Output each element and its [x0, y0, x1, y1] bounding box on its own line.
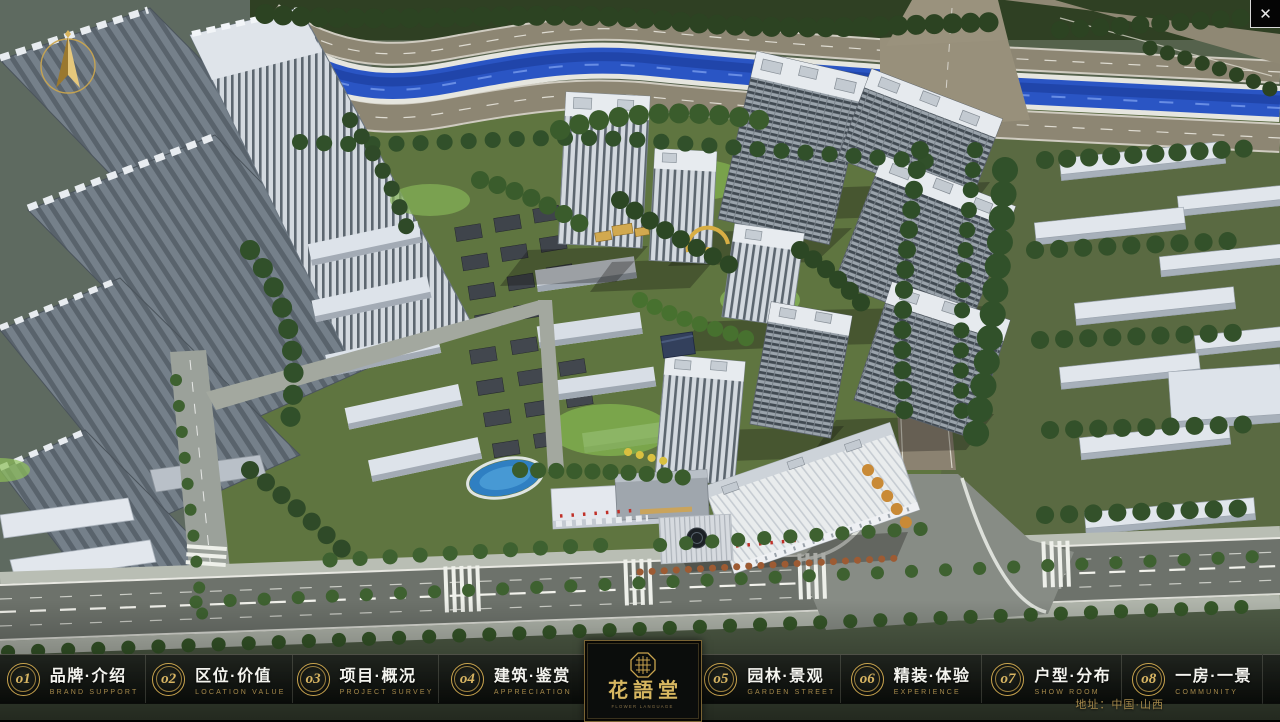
logo-title: 花語堂	[603, 681, 683, 701]
nav-sublabel: EXPERIENCE	[894, 689, 961, 696]
nav-item-architecture[interactable]: o4 建筑·鉴赏 APPRECIATION	[438, 655, 584, 703]
nav-sublabel: LOCATION VALUE	[195, 689, 285, 696]
nav-item-brand-intro[interactable]: o1 品牌·介绍 BRAND SUPPORT	[0, 655, 145, 703]
nav-item-fine-decoration[interactable]: o6 精装·体验 EXPERIENCE	[840, 655, 981, 703]
nav-sublabel: SHOW ROOM	[1034, 689, 1099, 696]
nav-number-badge: o6	[851, 663, 884, 696]
nav-item-location-value[interactable]: o2 区位·价值 LOCATION VALUE	[145, 655, 291, 703]
nav-label: 精装·体验	[894, 662, 971, 686]
nav-number-badge: o4	[451, 663, 484, 696]
nav-number-badge: o2	[152, 663, 185, 696]
nav-label: 区位·价值	[195, 662, 272, 686]
seal-icon	[630, 652, 656, 678]
project-address: 地址：中国·山西	[1075, 696, 1164, 712]
nav-label: 户型·分布	[1034, 662, 1111, 686]
nav-number-badge: o3	[297, 663, 330, 696]
nav-number-badge: o1	[7, 663, 40, 696]
nav-sublabel: APPRECIATION	[494, 689, 572, 696]
nav-number-badge: o7	[991, 663, 1024, 696]
nav-number-badge: o5	[704, 663, 737, 696]
logo-tagline: FLOWER LANGUAGE	[612, 704, 674, 709]
bottom-nav-endcap	[1262, 654, 1280, 704]
nav-item-garden-landscape[interactable]: o5 园林·景观 GARDEN STREET	[700, 655, 840, 703]
nav-label: 品牌·介绍	[50, 662, 127, 686]
nav-sublabel: PROJECT SURVEY	[340, 689, 434, 696]
nav-label: 园林·景观	[747, 662, 824, 686]
aerial-render-viewport[interactable]	[0, 0, 1280, 720]
nav-sublabel: COMMUNITY	[1175, 689, 1238, 696]
nav-label: 项目·概况	[340, 662, 417, 686]
bottom-nav-right: o5 园林·景观 GARDEN STREET o6 精装·体验 EXPERIEN…	[700, 654, 1262, 704]
nav-number-badge: o8	[1132, 663, 1165, 696]
nav-label: 建筑·鉴赏	[494, 662, 571, 686]
nav-sublabel: GARDEN STREET	[747, 689, 835, 696]
close-icon: ✕	[1259, 5, 1272, 23]
nav-label: 一房·一景	[1175, 662, 1252, 686]
nav-item-project-survey[interactable]: o3 项目·概况 PROJECT SURVEY	[292, 655, 438, 703]
close-button[interactable]: ✕	[1250, 0, 1280, 28]
project-logo[interactable]: 花語堂 FLOWER LANGUAGE	[584, 640, 702, 722]
nav-sublabel: BRAND SUPPORT	[50, 689, 139, 696]
bottom-nav-left: o1 品牌·介绍 BRAND SUPPORT o2 区位·价值 LOCATION…	[0, 654, 584, 704]
